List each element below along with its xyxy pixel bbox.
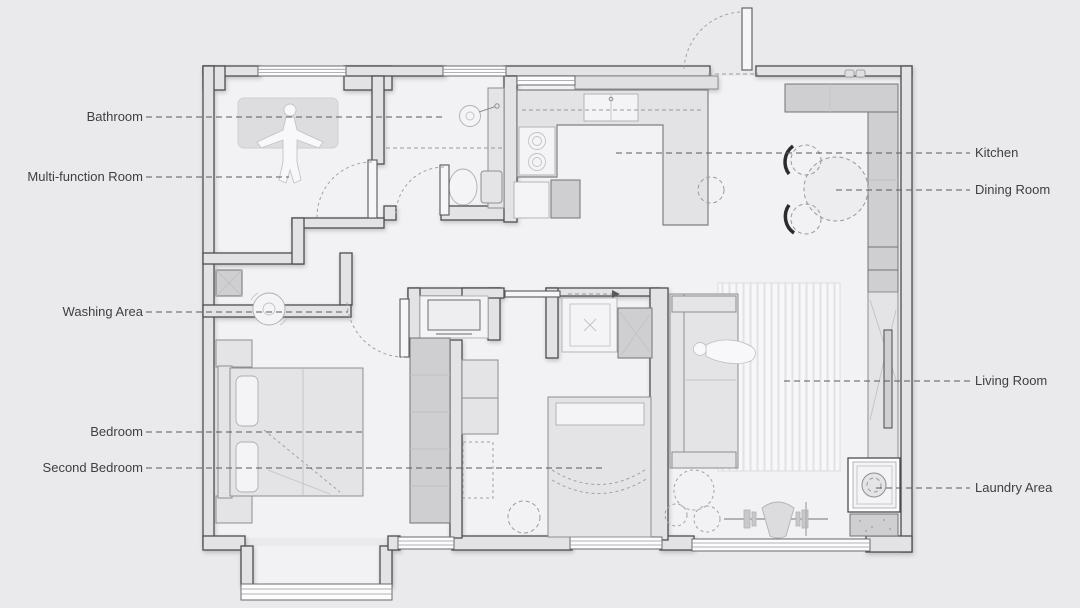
window-bathroom bbox=[443, 66, 506, 76]
label-bathroom: Bathroom bbox=[0, 108, 143, 126]
tv-cabinet bbox=[868, 292, 898, 470]
multifunction-door-leaf bbox=[368, 160, 377, 218]
nightstand bbox=[216, 340, 252, 367]
washing-cabinet bbox=[216, 270, 242, 296]
laundry-area bbox=[848, 458, 900, 536]
dining-table bbox=[804, 157, 868, 221]
label-dining-room: Dining Room bbox=[975, 181, 1050, 199]
bay-window-bedroom bbox=[241, 584, 392, 600]
wardrobe bbox=[410, 338, 450, 523]
closet bbox=[462, 360, 498, 398]
label-living-room: Living Room bbox=[975, 372, 1047, 390]
label-laundry-area: Laundry Area bbox=[975, 479, 1052, 497]
bedroom-door-leaf bbox=[400, 299, 409, 357]
kitchen-cabinet-gray bbox=[551, 180, 580, 218]
label-washing-area: Washing Area bbox=[0, 303, 143, 321]
sofa bbox=[670, 294, 738, 468]
bedroom-tv bbox=[420, 296, 488, 338]
floor-plan-drawing bbox=[0, 0, 1080, 608]
label-multi-function-room: Multi-function Room bbox=[0, 168, 143, 186]
desk-nook bbox=[562, 298, 617, 352]
laundry-mat bbox=[850, 514, 898, 536]
washing-machine bbox=[853, 462, 896, 508]
tv bbox=[884, 330, 892, 428]
nightstand bbox=[216, 496, 252, 523]
window-kitchen bbox=[517, 76, 575, 85]
bathroom-door-leaf bbox=[440, 165, 449, 215]
study-cabinet bbox=[618, 308, 652, 358]
window-living-room bbox=[692, 539, 870, 551]
window-bottom-1 bbox=[398, 537, 454, 549]
window-multifunction bbox=[258, 66, 346, 76]
label-bedroom: Bedroom bbox=[0, 423, 143, 441]
window-second-bedroom bbox=[570, 537, 662, 549]
floor-plan-canvas: Bathroom Multi-function Room Washing Are… bbox=[0, 0, 1080, 608]
closet bbox=[462, 398, 498, 434]
kitchen-sink bbox=[584, 94, 638, 121]
entrance-door bbox=[684, 8, 758, 74]
kitchen-cabinet bbox=[514, 182, 549, 218]
single-bed bbox=[548, 397, 651, 537]
label-second-bedroom: Second Bedroom bbox=[0, 459, 143, 477]
stove bbox=[519, 127, 555, 175]
label-kitchen: Kitchen bbox=[975, 144, 1018, 162]
